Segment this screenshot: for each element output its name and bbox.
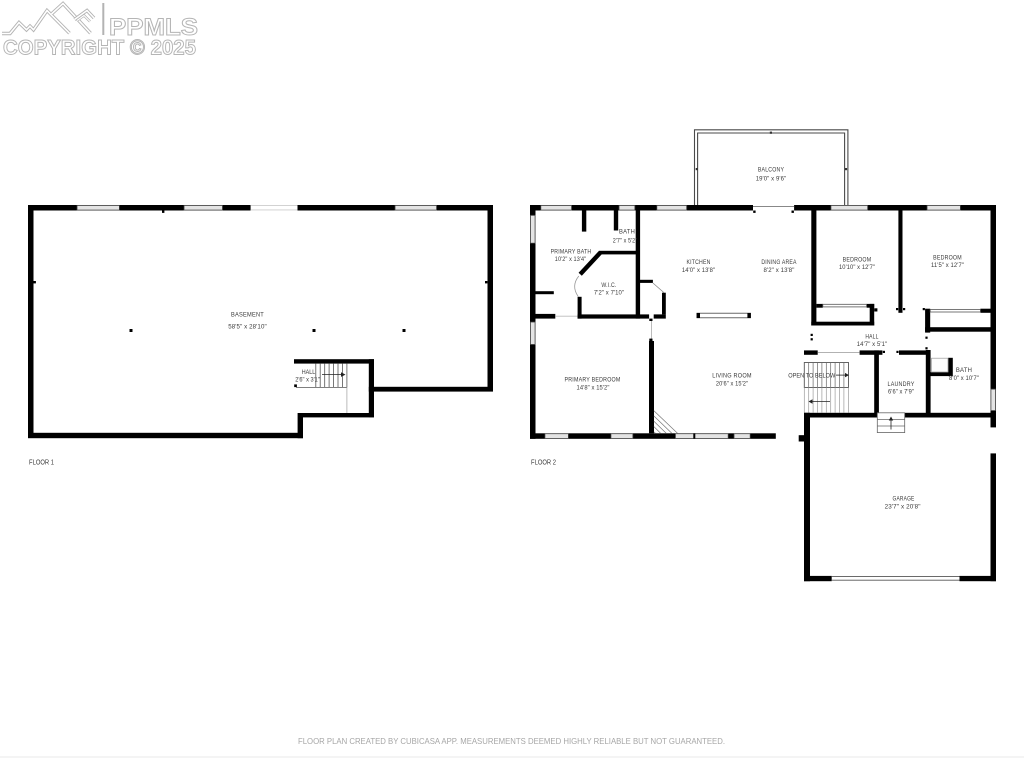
svg-text:10'10" x 12'7": 10'10" x 12'7" [839, 264, 875, 271]
svg-text:GARAGE: GARAGE [893, 495, 915, 502]
svg-text:COPYRIGHT © 2025: COPYRIGHT © 2025 [3, 36, 196, 60]
svg-text:KITCHEN: KITCHEN [687, 259, 711, 266]
svg-text:19'0" x 9'6": 19'0" x 9'6" [756, 175, 787, 182]
svg-text:PRIMARY BATH: PRIMARY BATH [551, 248, 592, 255]
svg-text:FLOOR PLAN CREATED BY CUBICASA: FLOOR PLAN CREATED BY CUBICASA APP. MEAS… [298, 736, 725, 746]
svg-text:BEDROOM: BEDROOM [933, 254, 962, 261]
svg-text:14'8" x 15'2": 14'8" x 15'2" [577, 385, 610, 392]
svg-text:10'2" x 13'4": 10'2" x 13'4" [555, 256, 586, 263]
svg-text:6'6" x 7'9": 6'6" x 7'9" [888, 388, 914, 395]
svg-text:DINING AREA: DINING AREA [761, 259, 796, 266]
svg-text:11'5" x 12'7": 11'5" x 12'7" [931, 262, 964, 269]
svg-text:2'7" x 5'2": 2'7" x 5'2" [613, 237, 638, 244]
svg-text:8'2" x 13'8": 8'2" x 13'8" [764, 267, 795, 274]
svg-text:HALL: HALL [302, 369, 316, 376]
svg-text:W.I.C.: W.I.C. [601, 282, 616, 289]
svg-text:20'6" x 15'2": 20'6" x 15'2" [716, 381, 748, 388]
svg-text:PRIMARY BEDROOM: PRIMARY BEDROOM [565, 377, 621, 384]
svg-text:LIVING ROOM: LIVING ROOM [712, 373, 752, 380]
svg-text:HALL: HALL [865, 333, 878, 340]
svg-text:OPEN TO BELOW: OPEN TO BELOW [788, 373, 836, 380]
svg-text:BEDROOM: BEDROOM [843, 256, 872, 263]
svg-text:FLOOR 2: FLOOR 2 [531, 460, 556, 467]
svg-text:FLOOR 1: FLOOR 1 [29, 460, 54, 467]
svg-text:14'0" x 13'8": 14'0" x 13'8" [682, 267, 715, 274]
svg-text:7'2" x 7'10": 7'2" x 7'10" [594, 290, 624, 297]
svg-text:BASEMENT: BASEMENT [231, 312, 264, 319]
svg-text:BATH: BATH [619, 228, 635, 235]
svg-text:8'0" x 10'7": 8'0" x 10'7" [949, 375, 979, 382]
svg-text:2'6" x 3'1": 2'6" x 3'1" [295, 378, 320, 384]
svg-text:23'7" x 20'8": 23'7" x 20'8" [885, 503, 921, 510]
svg-text:BALCONY: BALCONY [758, 167, 784, 174]
svg-text:LAUNDRY: LAUNDRY [888, 381, 915, 388]
svg-text:58'5" x 28'10": 58'5" x 28'10" [228, 324, 267, 331]
svg-text:BATH: BATH [956, 367, 972, 374]
svg-text:14'7" x 5'1": 14'7" x 5'1" [857, 341, 888, 348]
